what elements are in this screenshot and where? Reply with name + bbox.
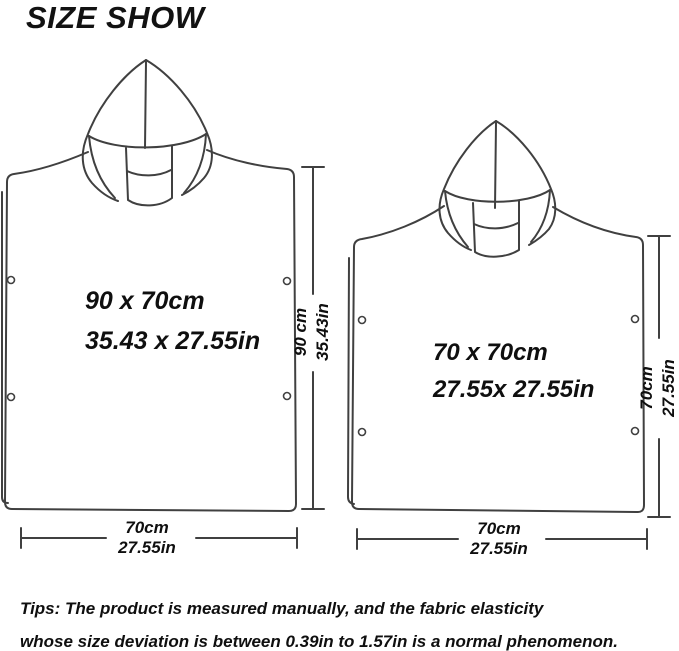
large-height-dimension-label: 90 cm 35.43in bbox=[289, 257, 335, 407]
small-width-in: 27.55in bbox=[434, 539, 564, 559]
small-height-in: 27.55in bbox=[658, 359, 679, 417]
small-poncho-mouth-line bbox=[474, 223, 518, 228]
large-width-dimension-label: 70cm 27.55in bbox=[82, 518, 212, 558]
tips-note: Tips: The product is measured manually, … bbox=[20, 592, 618, 651]
large-poncho-hood-center-seam bbox=[145, 62, 146, 148]
small-poncho-drawing bbox=[348, 121, 644, 512]
small-size-in: 27.55x 27.55in bbox=[433, 371, 594, 408]
small-poncho-size-label: 70 x 70cm 27.55x 27.55in bbox=[433, 334, 594, 408]
snap-icon bbox=[359, 317, 366, 324]
snap-icon bbox=[8, 394, 15, 401]
small-width-cm: 70cm bbox=[434, 519, 564, 539]
large-size-in: 35.43 x 27.55in bbox=[85, 321, 260, 361]
large-poncho-hood-brim-seam bbox=[89, 134, 206, 147]
large-size-cm: 90 x 70cm bbox=[85, 281, 260, 321]
large-poncho-hood-left-brim bbox=[89, 136, 115, 198]
small-poncho-hood-center-seam bbox=[495, 123, 496, 208]
large-width-in: 27.55in bbox=[82, 538, 212, 558]
small-poncho-hood-outline-right bbox=[496, 121, 555, 245]
small-height-cm: 70cm bbox=[636, 366, 658, 409]
large-height-cm: 90 cm bbox=[290, 308, 312, 356]
snap-icon bbox=[359, 429, 366, 436]
large-poncho-size-label: 90 x 70cm 35.43 x 27.55in bbox=[85, 281, 260, 361]
small-poncho-hood-outline bbox=[439, 121, 496, 250]
small-height-dimension-label: 70cm 27.55in bbox=[635, 313, 679, 463]
large-height-in: 35.43in bbox=[312, 303, 334, 361]
small-width-dimension-label: 70cm 27.55in bbox=[434, 519, 564, 559]
tips-line-2: whose size deviation is between 0.39in t… bbox=[20, 625, 618, 651]
large-poncho-hood-outline bbox=[83, 60, 146, 201]
large-width-cm: 70cm bbox=[82, 518, 212, 538]
tips-line-1: Tips: The product is measured manually, … bbox=[20, 592, 618, 625]
large-poncho-mouth-line bbox=[127, 170, 171, 175]
snap-icon bbox=[8, 277, 15, 284]
small-poncho-hood-brim-seam bbox=[445, 190, 550, 202]
small-size-cm: 70 x 70cm bbox=[433, 334, 594, 371]
size-chart: SIZE SHOW bbox=[0, 0, 679, 651]
